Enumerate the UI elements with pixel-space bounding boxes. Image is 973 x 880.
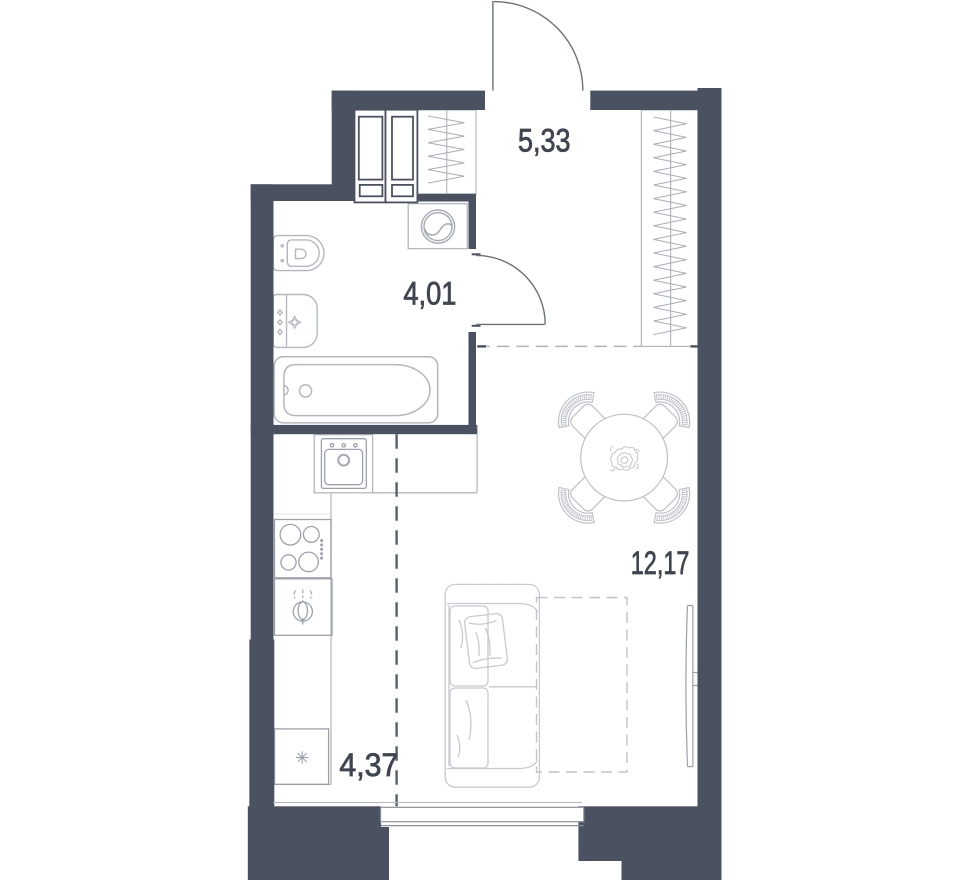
svg-text:12,17: 12,17	[631, 544, 690, 581]
svg-text:5,33: 5,33	[518, 123, 570, 159]
svg-text:4,37: 4,37	[339, 747, 398, 783]
svg-text:4,01: 4,01	[403, 276, 456, 312]
